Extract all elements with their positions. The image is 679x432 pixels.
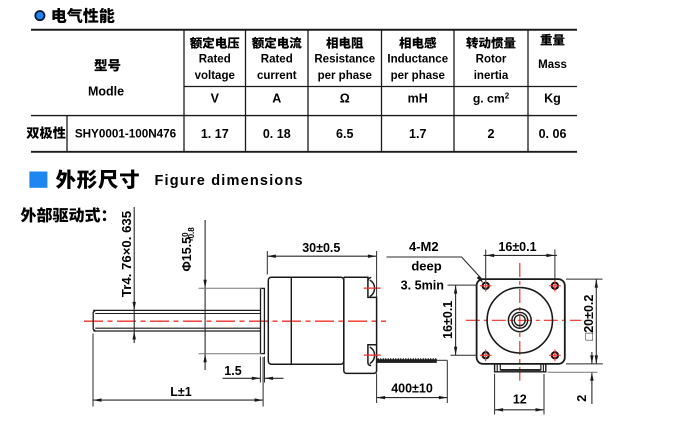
svg-text:voltage: voltage bbox=[195, 70, 235, 82]
svg-text:current: current bbox=[257, 70, 297, 82]
svg-text:30±0.5: 30±0.5 bbox=[302, 241, 340, 255]
svg-text:0. 06: 0. 06 bbox=[539, 127, 567, 141]
svg-text:Resistance: Resistance bbox=[314, 54, 375, 66]
svg-text:1. 17: 1. 17 bbox=[201, 127, 229, 141]
svg-text:Rated: Rated bbox=[199, 54, 231, 66]
svg-text:Modle: Modle bbox=[88, 85, 124, 99]
svg-text:Inductance: Inductance bbox=[387, 54, 448, 66]
svg-text:3. 5min: 3. 5min bbox=[401, 279, 444, 293]
svg-text:16±0.1: 16±0.1 bbox=[441, 301, 455, 339]
svg-text:Kg: Kg bbox=[544, 92, 561, 106]
svg-text:Ω: Ω bbox=[340, 92, 350, 106]
svg-text:400±10: 400±10 bbox=[391, 381, 433, 395]
svg-text:Rated: Rated bbox=[261, 54, 293, 66]
svg-text:A: A bbox=[272, 92, 281, 106]
svg-text:deep: deep bbox=[411, 258, 441, 273]
svg-text:L±1: L±1 bbox=[170, 385, 191, 399]
svg-text:16±0.1: 16±0.1 bbox=[498, 240, 536, 254]
svg-text:V: V bbox=[211, 92, 220, 106]
svg-text:inertia: inertia bbox=[474, 70, 509, 82]
svg-text:6.5: 6.5 bbox=[336, 127, 353, 141]
svg-text:1.7: 1.7 bbox=[409, 127, 426, 141]
svg-text:4-M2: 4-M2 bbox=[409, 239, 439, 254]
svg-text:SHY0001-100N476: SHY0001-100N476 bbox=[75, 128, 177, 141]
svg-text:Rotor: Rotor bbox=[476, 54, 507, 66]
svg-text:Mass: Mass bbox=[538, 59, 567, 71]
svg-text:g. cm2: g. cm2 bbox=[473, 92, 510, 106]
svg-text:per phase: per phase bbox=[391, 70, 445, 82]
svg-text:Tr4. 76×0. 635: Tr4. 76×0. 635 bbox=[119, 211, 134, 297]
svg-text:Φ15.50-0.8: Φ15.50-0.8 bbox=[180, 227, 196, 272]
svg-text:2: 2 bbox=[575, 395, 589, 402]
svg-text:per phase: per phase bbox=[318, 70, 372, 82]
svg-text:Figure dimensions: Figure dimensions bbox=[155, 173, 304, 189]
svg-text:2: 2 bbox=[488, 127, 495, 141]
svg-text:12: 12 bbox=[513, 393, 527, 407]
svg-text:mH: mH bbox=[408, 92, 428, 106]
svg-text:0. 18: 0. 18 bbox=[263, 127, 291, 141]
svg-text:□20±0.2: □20±0.2 bbox=[582, 295, 596, 341]
svg-text:1.5: 1.5 bbox=[224, 364, 241, 378]
